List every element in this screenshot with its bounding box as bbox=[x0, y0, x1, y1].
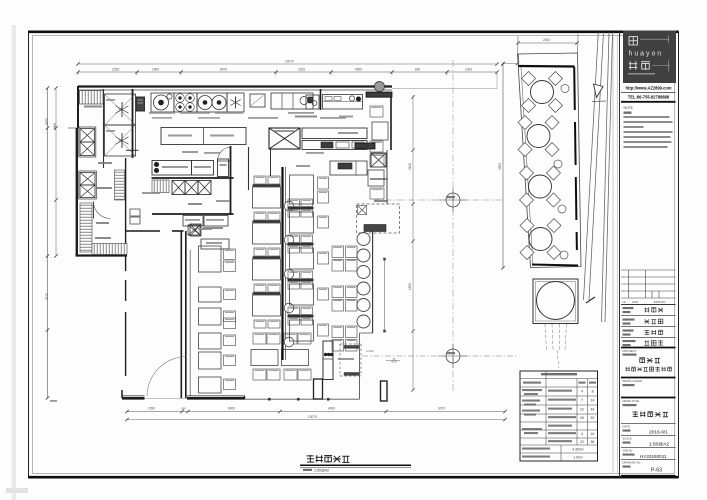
svg-text:2600: 2600 bbox=[543, 38, 550, 42]
svg-text:19070: 19070 bbox=[285, 60, 294, 64]
svg-text:1000: 1000 bbox=[465, 68, 472, 72]
svg-text:22: 22 bbox=[580, 408, 584, 412]
svg-text:3600: 3600 bbox=[53, 123, 57, 130]
svg-text:9500: 9500 bbox=[498, 163, 502, 170]
svg-text:6870: 6870 bbox=[45, 118, 49, 125]
svg-text:1500: 1500 bbox=[408, 283, 412, 290]
svg-text:52: 52 bbox=[591, 416, 595, 420]
svg-text:2016-9/1: 2016-9/1 bbox=[649, 430, 668, 436]
svg-text:WHITE JULISH: WHITE JULISH bbox=[623, 379, 642, 383]
svg-text:26: 26 bbox=[580, 416, 584, 420]
svg-text:8970: 8970 bbox=[220, 68, 227, 72]
svg-text:16: 16 bbox=[591, 432, 595, 436]
svg-text:1:50@A2: 1:50@A2 bbox=[314, 468, 329, 472]
svg-text:SCALE: SCALE bbox=[623, 437, 632, 441]
svg-text:7: 7 bbox=[581, 399, 583, 403]
svg-text:13070: 13070 bbox=[308, 415, 317, 419]
svg-text:P-63: P-63 bbox=[651, 468, 662, 474]
svg-text:http://www.AZ2899.com: http://www.AZ2899.com bbox=[625, 86, 671, 91]
svg-text:0.000: 0.000 bbox=[366, 349, 374, 353]
svg-text:1:50@A2: 1:50@A2 bbox=[649, 442, 669, 448]
svg-text:4000: 4000 bbox=[355, 68, 362, 72]
svg-text:3070: 3070 bbox=[438, 407, 445, 411]
svg-text:1900: 1900 bbox=[152, 68, 159, 72]
svg-text:56: 56 bbox=[591, 440, 595, 444]
svg-text:14: 14 bbox=[591, 399, 595, 403]
svg-text:NOTE: NOTE bbox=[624, 106, 634, 110]
svg-text:EDITION: EDITION bbox=[654, 300, 665, 304]
svg-text:4.35m²/: 4.35m²/ bbox=[572, 448, 583, 452]
svg-text:9170: 9170 bbox=[45, 293, 49, 300]
svg-text:2390: 2390 bbox=[148, 407, 155, 411]
svg-text:DRAW TITLE: DRAW TITLE bbox=[623, 399, 640, 403]
svg-text:DRAWING No.: DRAWING No. bbox=[623, 461, 642, 465]
svg-text:1200: 1200 bbox=[298, 68, 305, 72]
svg-text:4000: 4000 bbox=[328, 407, 335, 411]
svg-text:AGO: AGO bbox=[632, 300, 639, 304]
svg-text:No: No bbox=[623, 300, 627, 304]
svg-text:8: 8 bbox=[592, 390, 594, 394]
svg-text:HY20160011: HY20160011 bbox=[640, 454, 667, 459]
svg-text:h u a y o n: h u a y o n bbox=[629, 51, 662, 58]
svg-text:2335: 2335 bbox=[112, 68, 119, 72]
svg-text:44: 44 bbox=[591, 408, 595, 412]
svg-text:800: 800 bbox=[415, 68, 421, 72]
svg-text:DATE: DATE bbox=[623, 425, 630, 429]
svg-text:JOB No: JOB No bbox=[623, 449, 633, 453]
svg-text:6000: 6000 bbox=[228, 407, 235, 411]
svg-text:4: 4 bbox=[581, 390, 583, 394]
svg-text:4: 4 bbox=[581, 432, 583, 436]
svg-text:1.9m²/: 1.9m²/ bbox=[573, 456, 582, 460]
svg-text:180: 180 bbox=[181, 407, 186, 411]
svg-text:PROJECT: PROJECT bbox=[623, 349, 637, 353]
svg-text:2140: 2140 bbox=[408, 163, 412, 170]
svg-text:TEL:86-755-82788888: TEL:86-755-82788888 bbox=[628, 95, 670, 100]
svg-text:22: 22 bbox=[580, 440, 584, 444]
